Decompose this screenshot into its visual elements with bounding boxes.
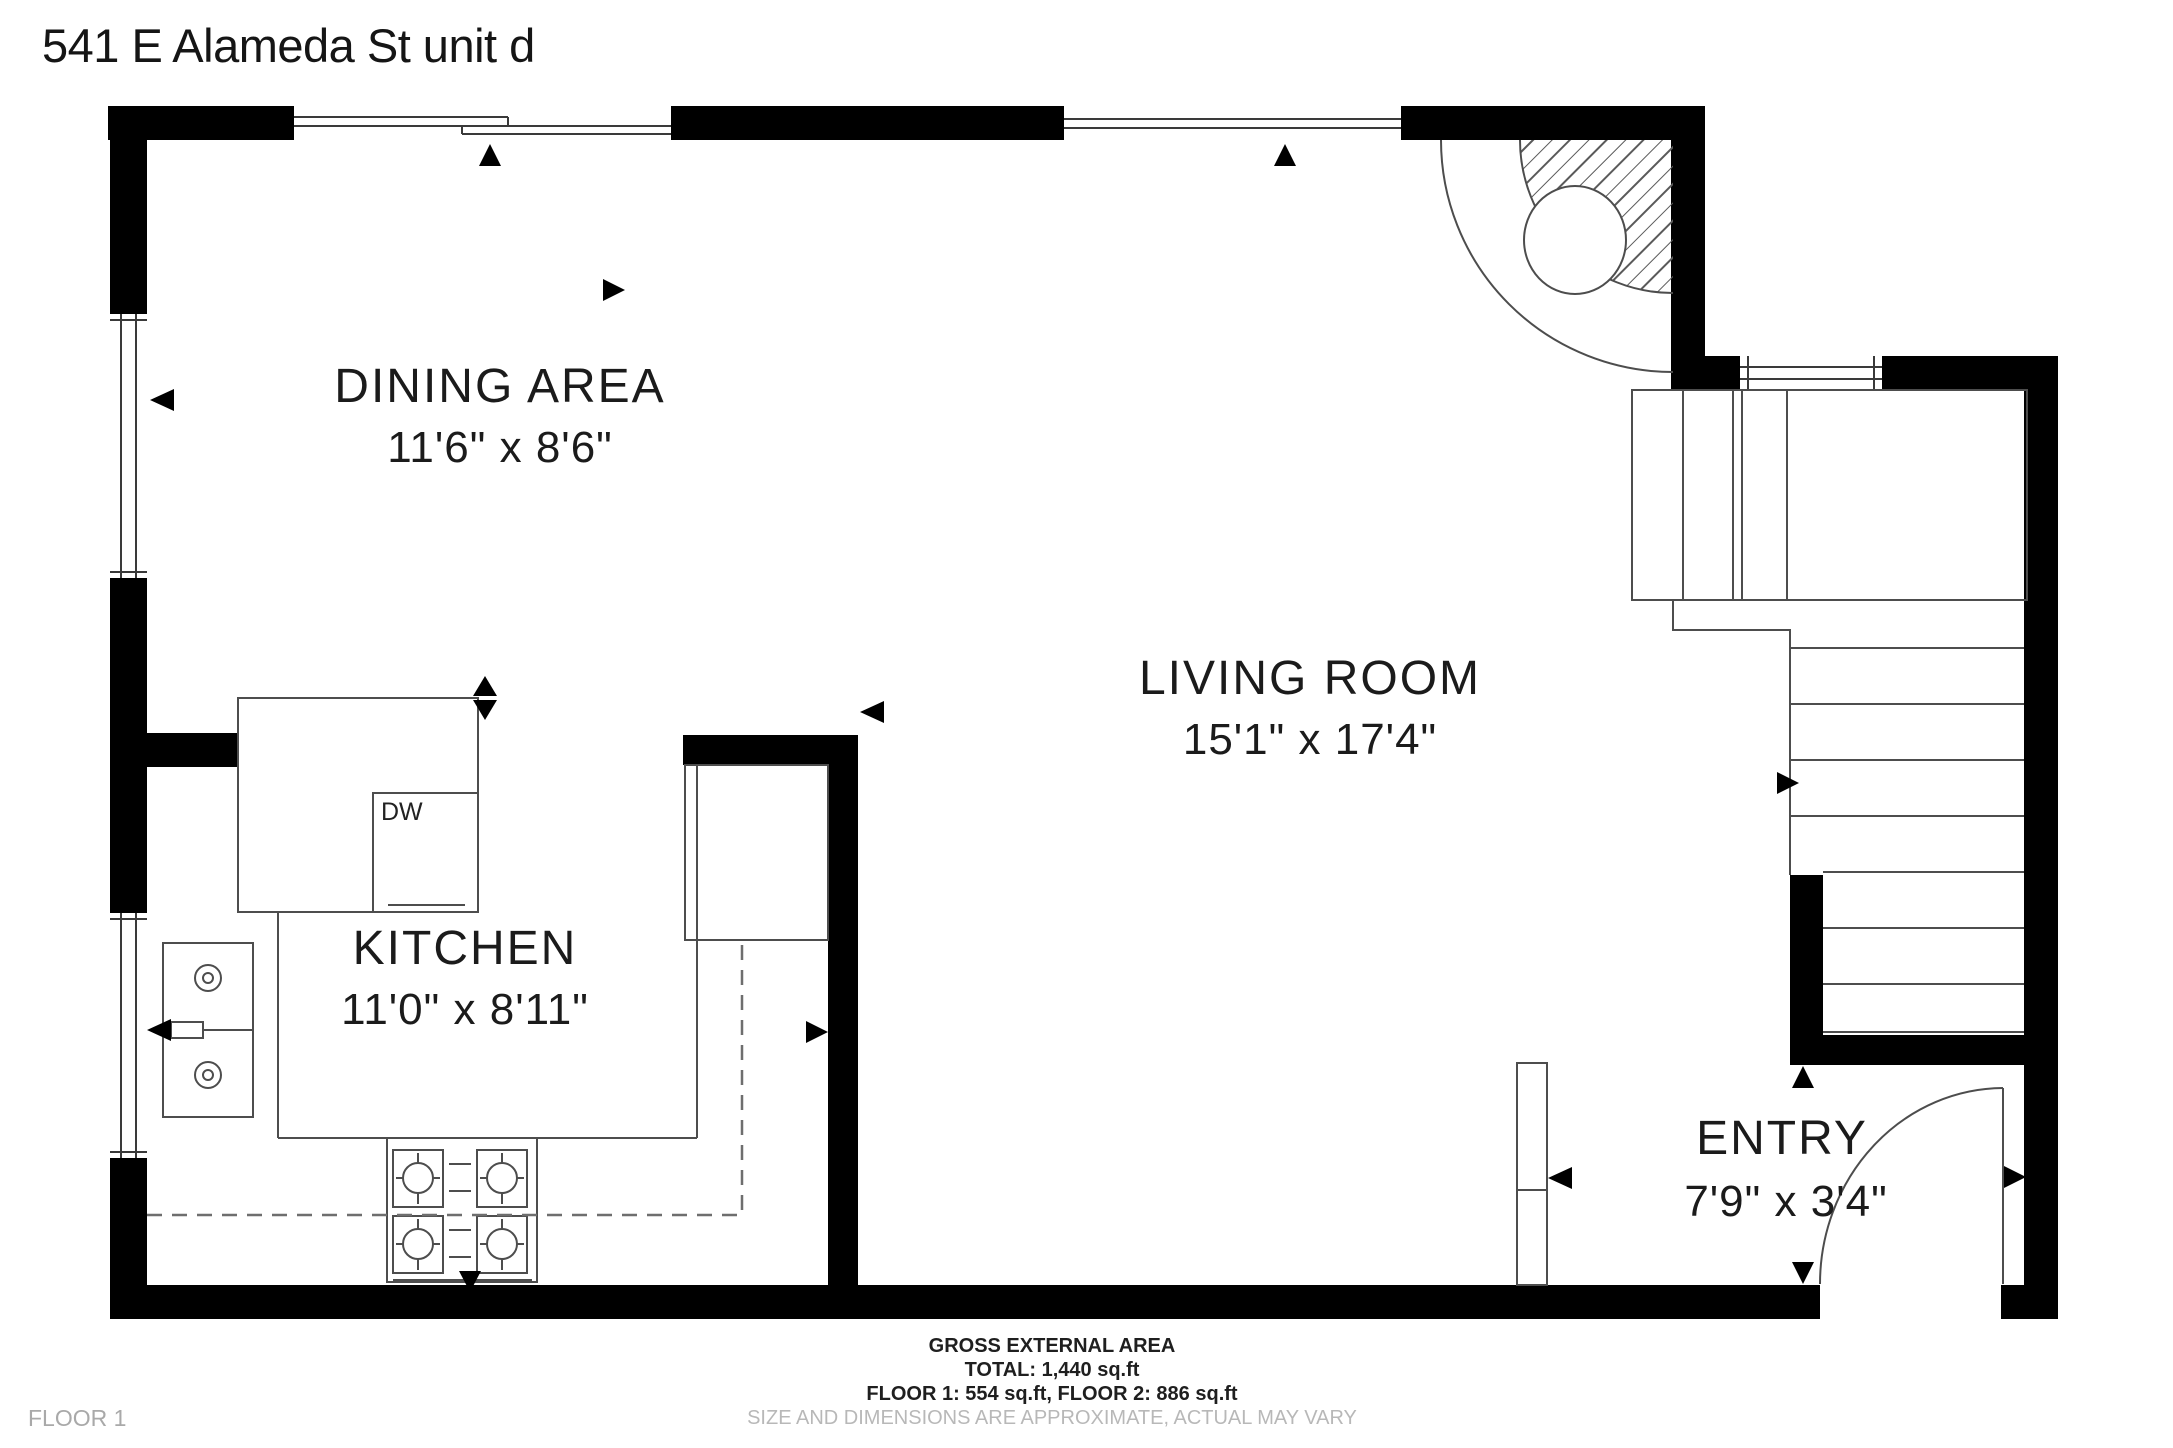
page-title: 541 E Alameda St unit d — [42, 19, 535, 72]
marker-right-icon — [2004, 1166, 2026, 1188]
floor-plan-svg: 541 E Alameda St unit d — [0, 0, 2173, 1448]
refrigerator — [685, 765, 828, 940]
footer-total: TOTAL: 1,440 sq.ft — [965, 1359, 1140, 1381]
wall-kitchen-vertical — [828, 735, 858, 1285]
stair-handrail — [1673, 600, 1790, 875]
marker-right-icon — [806, 1021, 828, 1043]
wall-left-mid — [110, 578, 147, 913]
marker-left-icon — [1548, 1167, 1572, 1189]
entry-partition — [1517, 1063, 1547, 1285]
marker-down-icon — [1792, 1262, 1814, 1284]
marker-left-icon — [860, 701, 884, 723]
wall-window-left-piece — [1671, 356, 1740, 390]
burner-ring — [487, 1163, 517, 1193]
burner-ring — [403, 1229, 433, 1259]
room-labels: DINING AREA 11'6" x 8'6" LIVING ROOM 15'… — [334, 360, 1887, 1226]
marker-left-icon — [150, 389, 174, 411]
curved-stair — [1441, 140, 1673, 372]
window-top-b — [1064, 106, 1401, 140]
window-right — [1740, 356, 1882, 390]
marker-up-icon — [479, 144, 501, 166]
window-left-1 — [110, 314, 147, 578]
floor-number-label: FLOOR 1 — [28, 1405, 126, 1431]
footer-area-title: GROSS EXTERNAL AREA — [929, 1335, 1176, 1357]
kitchen-counter-peninsula — [238, 698, 478, 912]
upper-cabinet-dashed-line — [147, 940, 742, 1215]
marker-bowtie-icon — [473, 700, 497, 720]
marker-bowtie-icon — [473, 676, 497, 696]
staircase — [1632, 390, 2027, 1032]
room-dims-entry: 7'9" x 3'4" — [1684, 1177, 1887, 1226]
cooktop — [387, 1138, 537, 1282]
burner-ring — [487, 1229, 517, 1259]
curved-stair-newel — [1524, 186, 1626, 294]
marker-right-icon — [1777, 772, 1799, 794]
wall-bottom — [110, 1285, 1820, 1319]
footer-disclaimer: SIZE AND DIMENSIONS ARE APPROXIMATE, ACT… — [747, 1407, 1357, 1429]
room-label-dining: DINING AREA — [334, 360, 665, 413]
room-dims-living: 15'1" x 17'4" — [1183, 715, 1437, 764]
entry-elements — [1517, 1063, 2003, 1285]
dishwasher-label: DW — [381, 798, 423, 826]
wall-kitchen-stub — [147, 733, 238, 767]
room-label-entry: ENTRY — [1696, 1112, 1868, 1165]
room-dims-dining: 11'6" x 8'6" — [387, 423, 613, 472]
sink-drain — [203, 973, 213, 983]
marker-up-icon — [1274, 144, 1296, 166]
window-left-2 — [110, 913, 147, 1158]
wall-right-upper-vertical — [1671, 106, 1705, 390]
footer-floors: FLOOR 1: 554 sq.ft, FLOOR 2: 886 sq.ft — [866, 1383, 1238, 1405]
floor-plan-page: 541 E Alameda St unit d — [0, 0, 2173, 1448]
burner-ring — [403, 1163, 433, 1193]
marker-right-icon — [603, 279, 625, 301]
room-dims-kitchen: 11'0" x 8'11" — [341, 985, 589, 1034]
sink-drain — [195, 965, 221, 991]
stair-landing — [1632, 390, 2027, 600]
sink-drain — [203, 1070, 213, 1080]
room-label-kitchen: KITCHEN — [353, 922, 578, 975]
sink-drain — [195, 1062, 221, 1088]
wall-right — [2024, 356, 2058, 1319]
wall-left-upper — [110, 106, 147, 314]
burner-ticks — [396, 1153, 524, 1270]
marker-up-icon — [1792, 1066, 1814, 1088]
wall-stair-bottom — [1790, 1035, 2024, 1065]
room-label-living: LIVING ROOM — [1139, 652, 1481, 705]
marker-left-icon — [147, 1019, 171, 1041]
sink-faucet — [171, 1022, 203, 1038]
footer: GROSS EXTERNAL AREA TOTAL: 1,440 sq.ft F… — [747, 1335, 1357, 1429]
wall-top-mid — [671, 106, 1064, 140]
wall-top-right — [1401, 106, 1705, 140]
